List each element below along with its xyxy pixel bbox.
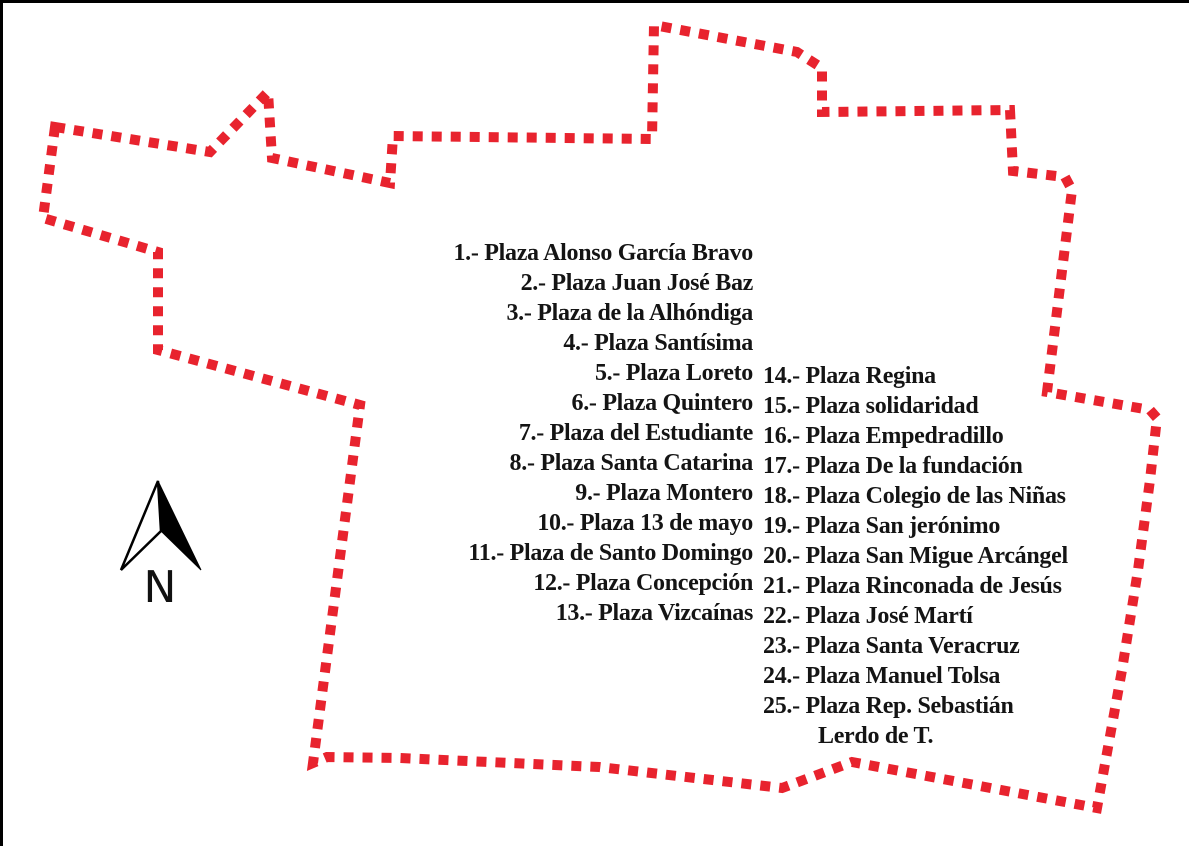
- plaza-item-9: 9.- Plaza Montero: [300, 478, 753, 508]
- plaza-item-5: 5.- Plaza Loreto: [300, 358, 753, 388]
- plaza-item-24: 24.- Plaza Manuel Tolsa: [763, 661, 1068, 691]
- plaza-item-19: 19.- Plaza San jerónimo: [763, 511, 1068, 541]
- map-canvas: N 1.- Plaza Alonso García Bravo 2.- Plaz…: [0, 0, 1189, 846]
- plaza-item-7: 7.- Plaza del Estudiante: [300, 418, 753, 448]
- plaza-item-21: 21.- Plaza Rinconada de Jesús: [763, 571, 1068, 601]
- plaza-item-13: 13.- Plaza Vizcaínas: [300, 598, 753, 628]
- plaza-item-16: 16.- Plaza Empedradillo: [763, 421, 1068, 451]
- plaza-item-23: 23.- Plaza Santa Veracruz: [763, 631, 1068, 661]
- plaza-item-22: 22.- Plaza José Martí: [763, 601, 1068, 631]
- plaza-item-12: 12.- Plaza Concepción: [300, 568, 753, 598]
- plaza-item-20: 20.- Plaza San Migue Arcángel: [763, 541, 1068, 571]
- north-arrow-right-wing: [158, 481, 201, 570]
- plaza-item-2: 2.- Plaza Juan José Baz: [300, 268, 753, 298]
- plaza-item-25: 25.- Plaza Rep. Sebastián: [763, 691, 1068, 721]
- plaza-item-17: 17.- Plaza De la fundación: [763, 451, 1068, 481]
- plaza-list-right: 14.- Plaza Regina 15.- Plaza solidaridad…: [763, 361, 1068, 751]
- plaza-item-4: 4.- Plaza Santísima: [300, 328, 753, 358]
- plaza-item-1: 1.- Plaza Alonso García Bravo: [300, 238, 753, 268]
- plaza-item-3: 3.- Plaza de la Alhóndiga: [300, 298, 753, 328]
- plaza-item-18: 18.- Plaza Colegio de las Niñas: [763, 481, 1068, 511]
- north-arrow-left-wing: [121, 481, 161, 570]
- north-label: N: [128, 566, 192, 610]
- plaza-list-left: 1.- Plaza Alonso García Bravo 2.- Plaza …: [300, 238, 753, 628]
- plaza-item-14: 14.- Plaza Regina: [763, 361, 1068, 391]
- plaza-item-10: 10.- Plaza 13 de mayo: [300, 508, 753, 538]
- plaza-item-15: 15.- Plaza solidaridad: [763, 391, 1068, 421]
- plaza-item-25-continuation: Lerdo de T.: [763, 721, 1068, 751]
- plaza-item-6: 6.- Plaza Quintero: [300, 388, 753, 418]
- plaza-item-8: 8.- Plaza Santa Catarina: [300, 448, 753, 478]
- plaza-item-11: 11.- Plaza de Santo Domingo: [300, 538, 753, 568]
